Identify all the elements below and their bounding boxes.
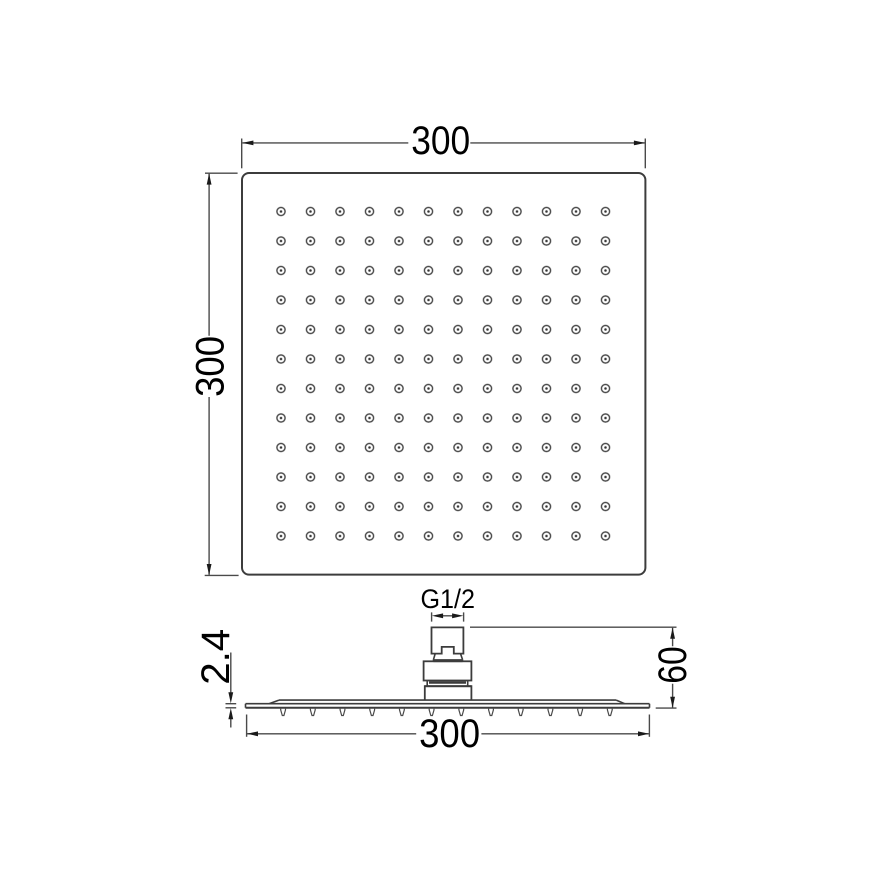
svg-text:300: 300 [411, 119, 470, 163]
svg-text:60: 60 [651, 646, 695, 684]
svg-text:300: 300 [188, 336, 232, 397]
svg-text:2.4: 2.4 [194, 629, 238, 685]
svg-text:300: 300 [419, 712, 480, 756]
svg-text:G1/2: G1/2 [420, 584, 475, 614]
